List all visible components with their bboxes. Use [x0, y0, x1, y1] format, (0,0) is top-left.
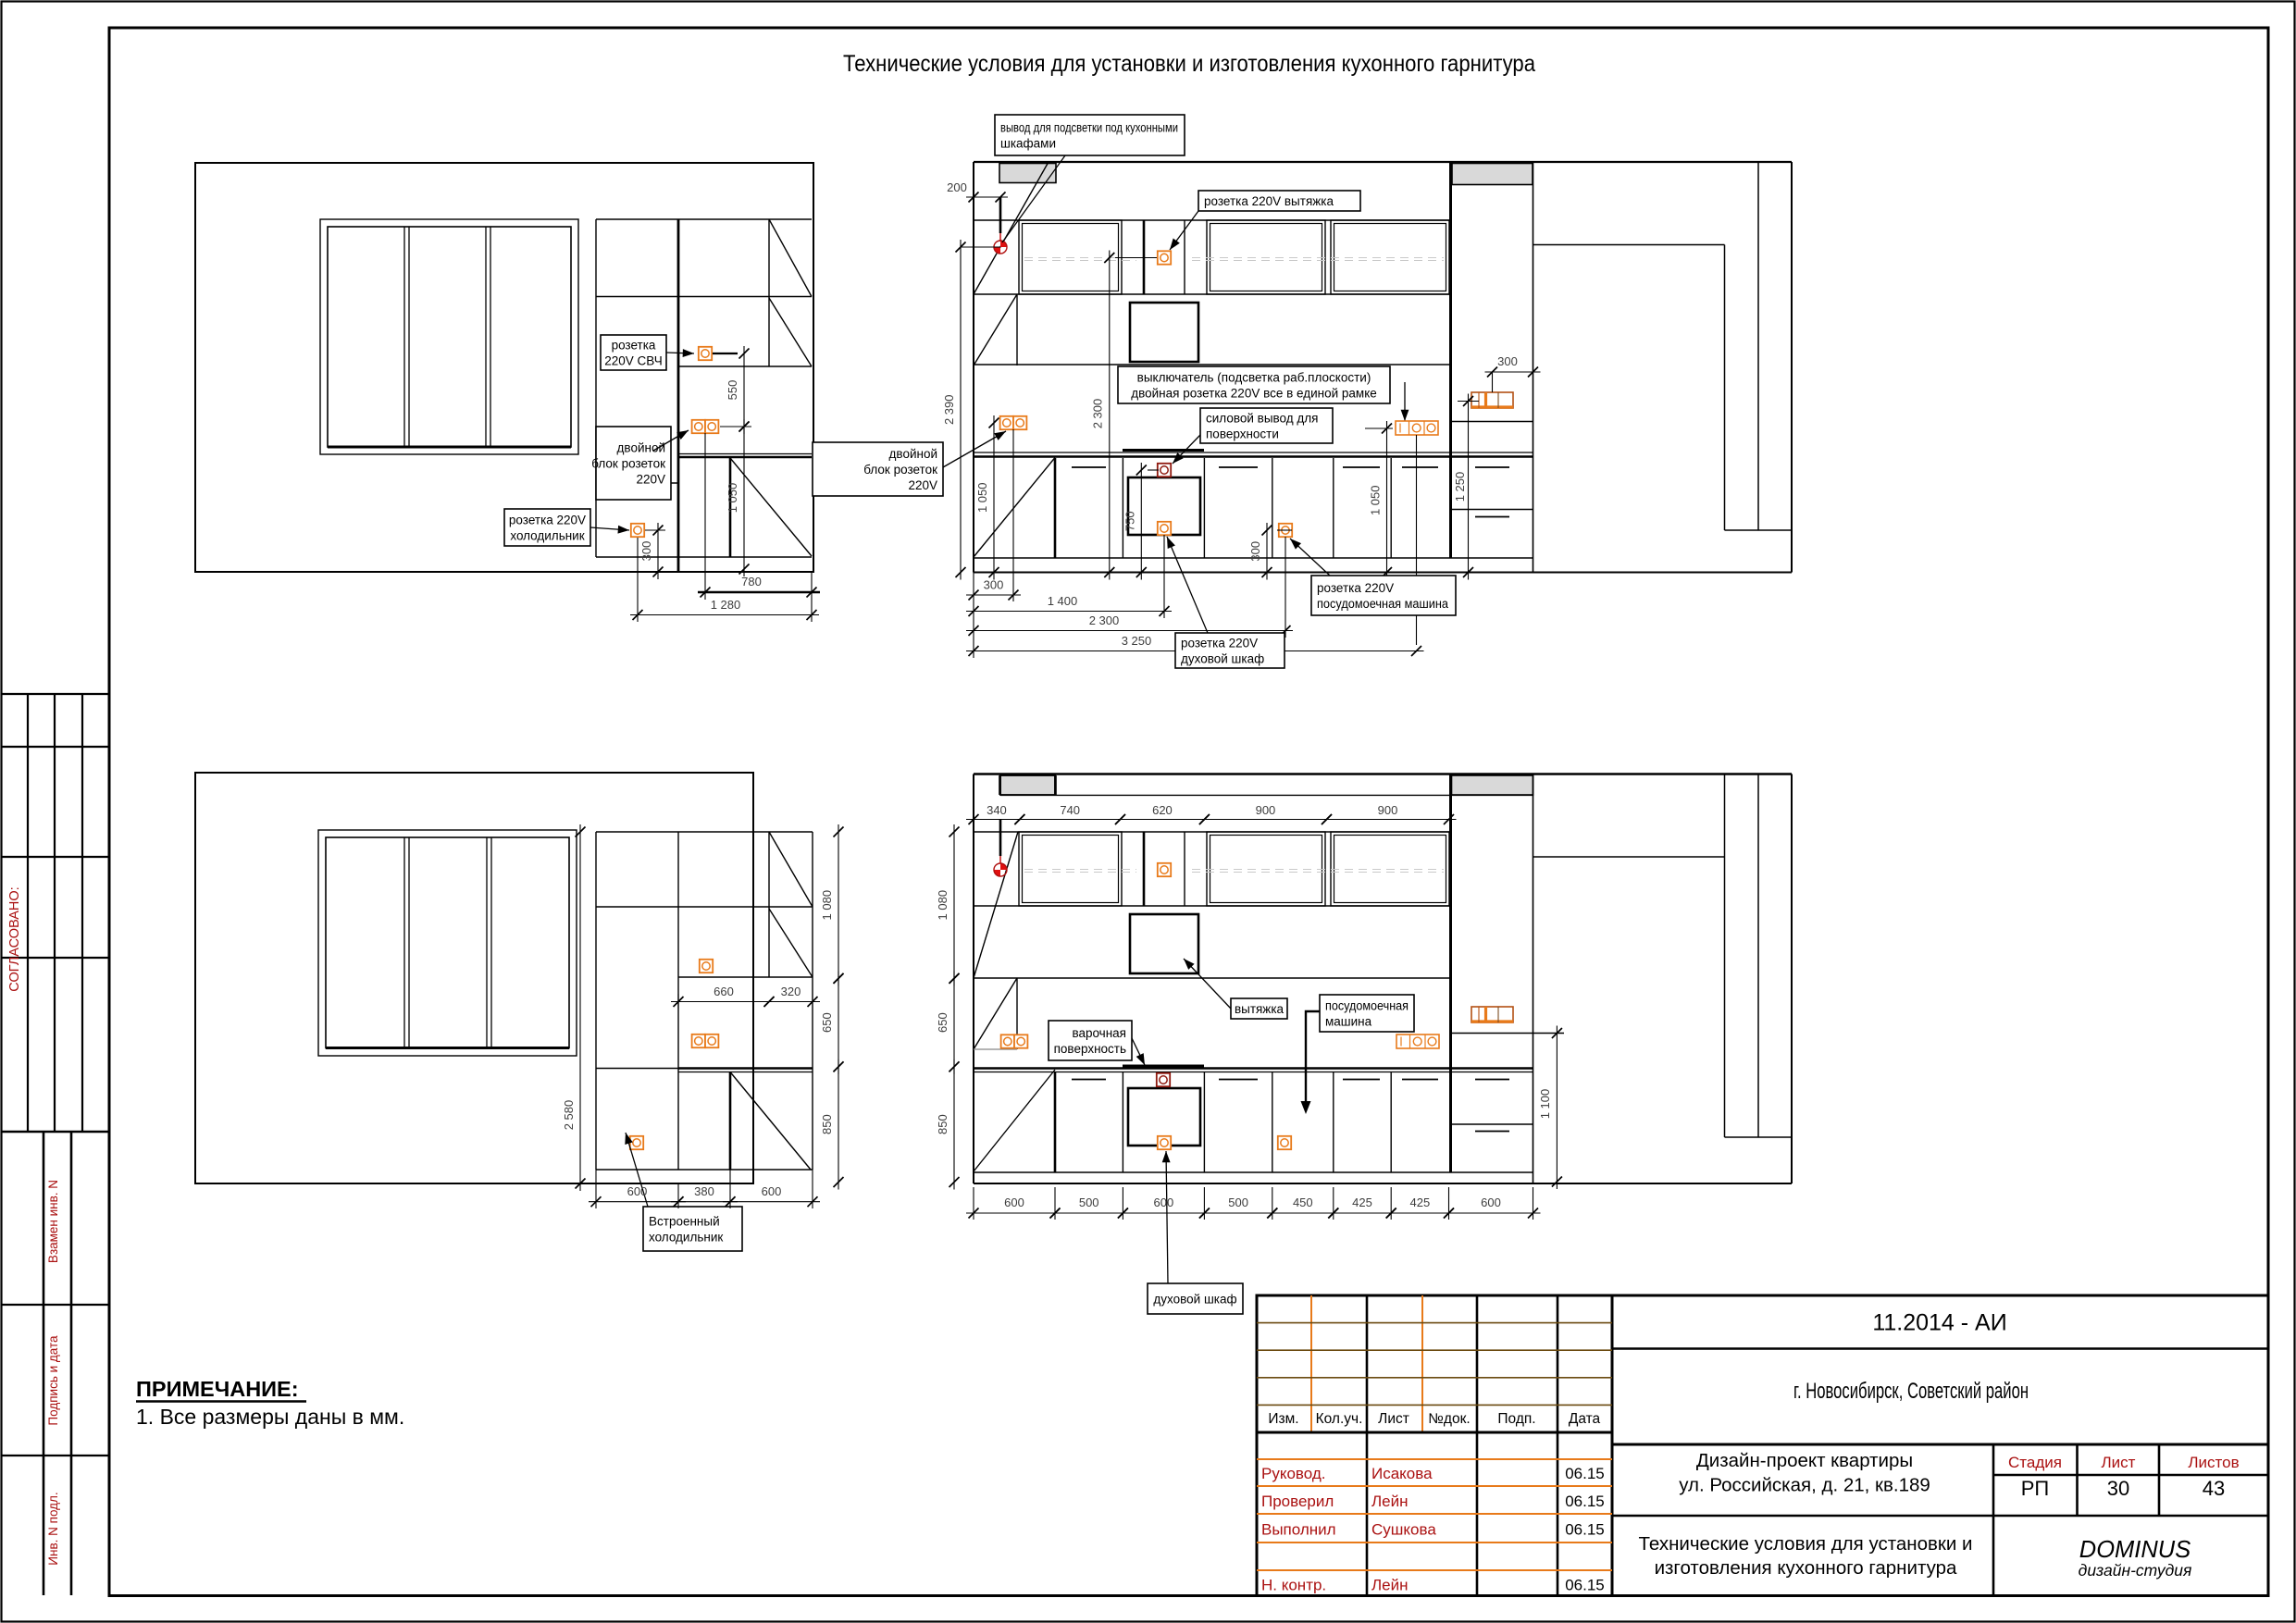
svg-text:600: 600 [627, 1184, 648, 1198]
svg-text:220V СВЧ: 220V СВЧ [604, 353, 662, 367]
svg-text:30: 30 [2107, 1477, 2129, 1500]
svg-text:43: 43 [2203, 1477, 2225, 1500]
svg-text:шкафами: шкафами [1000, 136, 1056, 150]
svg-text:Технические условия для устано: Технические условия для установки и [1639, 1533, 1973, 1555]
svg-text:Исакова: Исакова [1371, 1465, 1433, 1482]
svg-text:духовой шкаф: духовой шкаф [1181, 651, 1264, 665]
svg-text:1 080: 1 080 [820, 890, 834, 921]
svg-text:500: 500 [1228, 1196, 1248, 1209]
svg-text:2 390: 2 390 [942, 394, 956, 425]
svg-text:Проверил: Проверил [1261, 1493, 1334, 1510]
svg-text:Лейн: Лейн [1371, 1493, 1409, 1510]
svg-text:Инв. N подл.: Инв. N подл. [46, 1492, 60, 1565]
svg-text:холодильник: холодильник [510, 528, 584, 542]
svg-text:06.15: 06.15 [1565, 1521, 1605, 1539]
svg-text:изготовления кухонного гарниту: изготовления кухонного гарнитура [1655, 1557, 1957, 1579]
svg-text:СОГЛАСОВАНО:: СОГЛАСОВАНО: [7, 886, 22, 991]
svg-text:блок розеток: блок розеток [863, 463, 937, 477]
svg-text:850: 850 [936, 1114, 949, 1134]
svg-text:дизайн-студия: дизайн-студия [2079, 1561, 2192, 1580]
svg-text:300: 300 [984, 578, 1004, 592]
svg-text:розетка 220V: розетка 220V [1181, 636, 1258, 650]
svg-text:850: 850 [820, 1114, 834, 1134]
svg-text:варочная: варочная [1072, 1026, 1126, 1040]
svg-text:духовой шкаф: духовой шкаф [1153, 1292, 1236, 1306]
svg-text:Изм.: Изм. [1268, 1411, 1298, 1427]
svg-text:1 400: 1 400 [1048, 594, 1078, 608]
svg-text:1 100: 1 100 [1538, 1089, 1552, 1120]
svg-text:поверхность: поверхность [1054, 1042, 1126, 1056]
svg-text:1 050: 1 050 [1369, 485, 1383, 515]
svg-text:320: 320 [781, 985, 801, 998]
svg-text:340: 340 [987, 803, 1007, 817]
svg-text:розетка 220V вытяжка: розетка 220V вытяжка [1204, 194, 1334, 208]
svg-text:1 250: 1 250 [1453, 472, 1467, 502]
svg-text:блок розеток: блок розеток [591, 456, 665, 470]
svg-text:380: 380 [694, 1184, 714, 1198]
svg-text:650: 650 [820, 1012, 834, 1033]
svg-text:220V: 220V [908, 478, 937, 492]
svg-text:425: 425 [1352, 1196, 1372, 1209]
svg-text:Взамен инв. N: Взамен инв. N [46, 1180, 60, 1263]
svg-text:посудомоечная машина: посудомоечная машина [1317, 597, 1448, 611]
svg-text:450: 450 [1293, 1196, 1313, 1209]
svg-text:425: 425 [1409, 1196, 1430, 1209]
svg-text:1 080: 1 080 [936, 890, 949, 921]
svg-text:№док.: №док. [1428, 1411, 1470, 1427]
svg-text:2 300: 2 300 [1089, 613, 1120, 627]
svg-text:300: 300 [1248, 541, 1262, 562]
svg-text:900: 900 [1256, 803, 1276, 817]
svg-text:06.15: 06.15 [1565, 1493, 1605, 1510]
svg-text:вытяжка: вытяжка [1235, 1002, 1285, 1016]
svg-text:500: 500 [1079, 1196, 1099, 1209]
svg-text:660: 660 [714, 985, 734, 998]
svg-text:600: 600 [1004, 1196, 1024, 1209]
svg-text:300: 300 [1497, 354, 1518, 368]
svg-text:200: 200 [947, 180, 967, 194]
svg-text:740: 740 [1060, 803, 1080, 817]
svg-text:600: 600 [1154, 1196, 1174, 1209]
svg-text:розетка 220V: розетка 220V [509, 513, 586, 527]
svg-text:посудомоечная: посудомоечная [1325, 998, 1409, 1012]
svg-text:Подп.: Подп. [1497, 1411, 1535, 1427]
svg-text:силовой вывод для: силовой вывод для [1206, 411, 1318, 425]
svg-text:Выполнил: Выполнил [1261, 1521, 1336, 1539]
svg-text:1 050: 1 050 [726, 483, 739, 514]
svg-text:1 050: 1 050 [975, 482, 989, 513]
svg-text:Сушкова: Сушкова [1371, 1521, 1436, 1539]
svg-text:ПРИМЕЧАНИЕ:: ПРИМЕЧАНИЕ: [136, 1377, 299, 1401]
svg-text:Лист: Лист [2102, 1454, 2136, 1471]
svg-text:620: 620 [1152, 803, 1173, 817]
svg-text:Руковод.: Руковод. [1261, 1465, 1326, 1482]
svg-text:220V: 220V [636, 472, 665, 486]
svg-text:ул. Российская, д. 21, кв.189: ул. Российская, д. 21, кв.189 [1679, 1475, 1930, 1496]
svg-text:Лист: Лист [1378, 1411, 1409, 1427]
svg-text:3 250: 3 250 [1122, 634, 1152, 648]
svg-text:поверхности: поверхности [1206, 427, 1279, 440]
svg-text:Листов: Листов [2188, 1454, 2239, 1471]
svg-text:1 280: 1 280 [711, 598, 741, 612]
svg-text:Кол.уч.: Кол.уч. [1316, 1411, 1363, 1427]
svg-text:выключатель (подсветка раб.пло: выключатель (подсветка раб.плоскости) [1137, 370, 1371, 384]
svg-text:06.15: 06.15 [1565, 1577, 1605, 1594]
svg-text:Стадия: Стадия [2008, 1454, 2062, 1471]
svg-text:750: 750 [1123, 511, 1137, 531]
svg-text:Подпись и дата: Подпись и дата [46, 1335, 60, 1426]
svg-text:двойной: двойной [889, 447, 937, 461]
svg-text:Дата: Дата [1569, 1411, 1601, 1427]
svg-text:2 300: 2 300 [1091, 399, 1105, 429]
svg-text:780: 780 [741, 575, 762, 588]
svg-text:холодильник: холодильник [649, 1230, 723, 1244]
svg-text:900: 900 [1378, 803, 1398, 817]
svg-text:Дизайн-проект квартиры: Дизайн-проект квартиры [1696, 1450, 1913, 1471]
svg-text:600: 600 [1481, 1196, 1501, 1209]
svg-text:г. Новосибирск, Советский райо: г. Новосибирск, Советский район [1793, 1379, 2029, 1404]
svg-text:машина: машина [1325, 1014, 1372, 1028]
svg-text:11.2014 - АИ: 11.2014 - АИ [1872, 1310, 2006, 1336]
svg-text:06.15: 06.15 [1565, 1465, 1605, 1482]
svg-text:600: 600 [762, 1184, 782, 1198]
svg-text:РП: РП [2021, 1477, 2050, 1500]
svg-text:300: 300 [639, 541, 653, 562]
svg-text:550: 550 [726, 380, 739, 401]
svg-text:Н. контр.: Н. контр. [1261, 1577, 1326, 1594]
svg-text:Встроенный: Встроенный [649, 1214, 720, 1228]
svg-text:Лейн: Лейн [1371, 1577, 1409, 1594]
svg-text:2 580: 2 580 [562, 1100, 576, 1131]
svg-text:розетка 220V: розетка 220V [1317, 581, 1394, 595]
svg-text:розетка: розетка [612, 338, 656, 352]
svg-text:1. Все размеры даны в мм.: 1. Все размеры даны в мм. [136, 1405, 404, 1429]
svg-text:650: 650 [936, 1012, 949, 1033]
svg-text:DOMINUS: DOMINUS [2079, 1537, 2191, 1563]
svg-text:Технические условия для устано: Технические условия для установки и изго… [843, 51, 1535, 77]
svg-text:вывод для подсветки под кухонн: вывод для подсветки под кухонными [1000, 120, 1178, 134]
svg-text:двойная розетка 220V все в еди: двойная розетка 220V все в единой рамке [1131, 386, 1377, 400]
